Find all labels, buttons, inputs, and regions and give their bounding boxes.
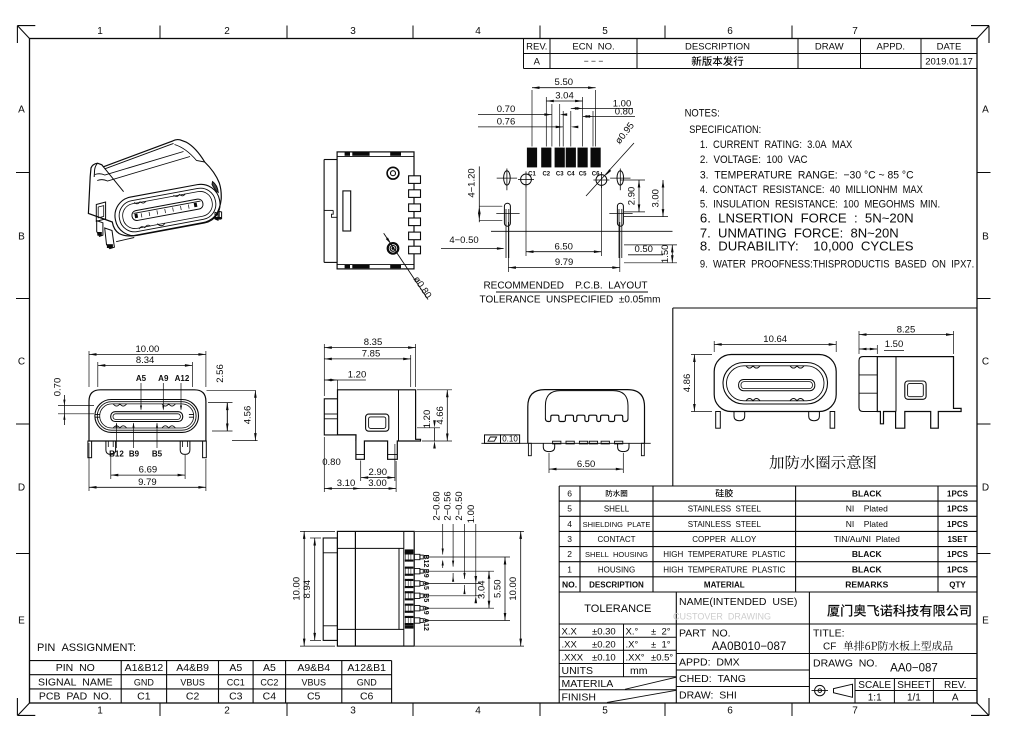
svg-text:±0.30: ±0.30 [592, 626, 616, 637]
svg-text:2: 2 [567, 549, 572, 559]
svg-text:2.90: 2.90 [369, 467, 388, 478]
svg-text:C4: C4 [263, 691, 277, 703]
svg-text:RECOMMENDED P.C.B. LAYOUT: RECOMMENDED P.C.B. LAYOUT [483, 281, 647, 292]
svg-text:1.50: 1.50 [660, 245, 671, 264]
svg-text:6.50: 6.50 [577, 459, 596, 470]
svg-text:STAINLESS STEEL: STAINLESS STEEL [688, 505, 762, 514]
svg-text:BLACK: BLACK [852, 549, 883, 559]
svg-text:MATERILA: MATERILA [562, 678, 614, 690]
svg-text:1/1: 1/1 [907, 692, 921, 703]
svg-text:±0.5°: ±0.5° [651, 653, 673, 664]
svg-text:6.50: 6.50 [554, 241, 573, 252]
svg-text:7.85: 7.85 [362, 349, 381, 360]
svg-text:CUSTOVER DRAWING: CUSTOVER DRAWING [673, 612, 771, 622]
svg-text:.XXX: .XXX [562, 653, 584, 664]
svg-text:HIGH TEMPERATURE PLASTIC: HIGH TEMPERATURE PLASTIC [663, 550, 785, 559]
svg-text:7. UNMATING FORCE: 8N~20N: 7. UNMATING FORCE: 8N~20N [700, 227, 899, 241]
svg-text:10.00: 10.00 [136, 344, 160, 355]
svg-text:DRAW: SHI: DRAW: SHI [679, 689, 737, 701]
svg-text:E: E [982, 616, 989, 627]
svg-text:NAME(INTENDED USE): NAME(INTENDED USE) [679, 596, 797, 608]
svg-text:A12: A12 [175, 374, 190, 383]
svg-text:PIN NO: PIN NO [56, 662, 95, 674]
svg-text:6: 6 [727, 706, 733, 717]
svg-text:C6: C6 [592, 172, 600, 178]
svg-text:UNITS: UNITS [562, 665, 594, 677]
svg-text:0.80: 0.80 [322, 457, 341, 468]
svg-text:.XX: .XX [562, 640, 578, 651]
svg-text:A5: A5 [229, 662, 242, 674]
svg-text:9. WATER PROOFNESS:THISPRODU: 9. WATER PROOFNESS:THISPRODUCTIS BASED O… [700, 258, 974, 270]
svg-text:CHED: TANG: CHED: TANG [679, 673, 746, 685]
svg-text:A5: A5 [263, 662, 276, 674]
svg-text:1: 1 [97, 706, 103, 717]
svg-text:5.50: 5.50 [555, 77, 574, 88]
svg-text:5: 5 [567, 504, 572, 514]
svg-text:2−0.60: 2−0.60 [432, 491, 443, 520]
svg-text:1:1: 1:1 [868, 692, 882, 703]
svg-text:DESCRIPTION: DESCRIPTION [685, 42, 750, 53]
svg-text:MATERIAL: MATERIAL [704, 580, 745, 589]
svg-text:10.00: 10.00 [508, 577, 519, 601]
svg-text:GND: GND [357, 677, 378, 687]
svg-text:B5: B5 [422, 593, 429, 602]
svg-text:A12&B1: A12&B1 [347, 662, 386, 674]
svg-text:0.70: 0.70 [497, 104, 516, 115]
svg-text:C: C [18, 357, 25, 368]
svg-text:SIGNAL NAME: SIGNAL NAME [38, 676, 113, 688]
svg-text:8.94: 8.94 [302, 580, 313, 599]
svg-text:2−0.50: 2−0.50 [454, 491, 465, 520]
svg-text:1.20: 1.20 [422, 410, 433, 429]
svg-text:B: B [982, 232, 989, 243]
svg-text:D: D [18, 483, 25, 494]
svg-text:1PCS: 1PCS [947, 490, 969, 499]
svg-text:8. DURABILITY: 10,000 CYC: 8. DURABILITY: 10,000 CYCLES [700, 240, 914, 254]
svg-text:A5: A5 [422, 581, 429, 590]
svg-text:QTY: QTY [949, 580, 966, 589]
svg-text:SPECIFICATION:: SPECIFICATION: [689, 124, 761, 136]
svg-text:SHEET: SHEET [897, 680, 930, 691]
svg-text:APPD.: APPD. [877, 42, 906, 53]
svg-text:A9&B4: A9&B4 [297, 662, 330, 674]
svg-text:BLACK: BLACK [852, 489, 883, 499]
svg-text:± 1°: ± 1° [651, 640, 671, 651]
svg-text:3: 3 [350, 706, 356, 717]
svg-text:1: 1 [97, 26, 103, 37]
svg-text:NI Plated: NI Plated [846, 504, 888, 514]
svg-text:3: 3 [350, 26, 356, 37]
svg-text:AA0B010−087: AA0B010−087 [712, 641, 787, 653]
svg-text:CC2: CC2 [260, 677, 278, 687]
svg-text:4: 4 [475, 26, 481, 37]
svg-text:±0.20: ±0.20 [592, 640, 616, 651]
svg-text:A: A [18, 105, 25, 116]
svg-text:DATE: DATE [937, 42, 962, 53]
svg-text:ECN NO.: ECN NO. [572, 42, 614, 53]
svg-text:±0.10: ±0.10 [592, 653, 616, 664]
svg-text:B: B [18, 232, 25, 243]
svg-text:TOLERANCE: TOLERANCE [584, 603, 651, 615]
svg-text:0.10: 0.10 [502, 435, 518, 444]
svg-text:C3: C3 [556, 172, 564, 178]
svg-text:4.86: 4.86 [682, 374, 693, 393]
svg-text:1.50: 1.50 [885, 339, 904, 350]
svg-text:DRAW: DRAW [815, 42, 844, 53]
svg-text:COPPER ALLOY: COPPER ALLOY [692, 535, 757, 544]
svg-text:± 2°: ± 2° [651, 626, 671, 637]
svg-text:C2: C2 [542, 172, 550, 178]
svg-text:mm: mm [630, 665, 648, 677]
svg-text:8.35: 8.35 [364, 337, 383, 348]
svg-text:2.90: 2.90 [626, 187, 637, 206]
svg-text:4. CONTACT RESISTANCE: 40: 4. CONTACT RESISTANCE: 40 MILLIONHM MAX [700, 184, 924, 196]
svg-text:2: 2 [224, 706, 230, 717]
svg-text:3.10: 3.10 [337, 478, 356, 489]
svg-text:1: 1 [567, 564, 572, 574]
svg-text:VBUS: VBUS [301, 677, 326, 687]
svg-text:CC1: CC1 [227, 677, 245, 687]
svg-text:6. LNSERTION FORCE : 5N~20: 6. LNSERTION FORCE : 5N~20N [700, 212, 914, 226]
svg-text:5. INSULATION RESISTANCE: 1: 5. INSULATION RESISTANCE: 100 MEGOHMS MI… [700, 199, 940, 211]
svg-text:0.76: 0.76 [497, 117, 516, 128]
svg-text:A: A [534, 57, 541, 68]
svg-text:4: 4 [475, 706, 481, 717]
svg-text:A5: A5 [136, 374, 147, 383]
svg-text:9.79: 9.79 [138, 477, 157, 488]
svg-text:7: 7 [852, 706, 858, 717]
svg-text:A9: A9 [158, 374, 169, 383]
svg-text:1. CURRENT RATING: 3.0A MA: 1. CURRENT RATING: 3.0A MAX [700, 139, 853, 151]
svg-text:4−0.50: 4−0.50 [449, 235, 478, 246]
svg-text:D: D [982, 483, 989, 494]
svg-text:3.00: 3.00 [651, 189, 662, 208]
svg-text:0.80: 0.80 [615, 107, 634, 118]
svg-text:C5: C5 [307, 691, 321, 703]
svg-text:A: A [982, 105, 989, 116]
svg-text:C1: C1 [137, 691, 151, 703]
svg-text:REV.: REV. [526, 42, 547, 53]
svg-text:2: 2 [224, 26, 230, 37]
svg-text:7: 7 [852, 26, 858, 37]
svg-text:SCALE: SCALE [858, 680, 891, 691]
svg-text:.XX°: .XX° [626, 653, 645, 664]
svg-text:TOLERANCE UNSPECIFIED ±0.05m: TOLERANCE UNSPECIFIED ±0.05mm [480, 295, 661, 306]
svg-text:DRAWG NO.: DRAWG NO. [813, 658, 877, 670]
svg-text:REMARKS: REMARKS [845, 579, 888, 589]
svg-text:A4&B9: A4&B9 [176, 662, 209, 674]
svg-text:SHIELDING PLATE: SHIELDING PLATE [583, 520, 651, 529]
svg-text:2−0.56: 2−0.56 [443, 491, 454, 520]
svg-text:8.34: 8.34 [136, 355, 155, 366]
svg-text:1.00: 1.00 [466, 505, 477, 524]
svg-text:C5: C5 [579, 172, 587, 178]
svg-text:0.70: 0.70 [53, 378, 64, 397]
svg-text:DESCRIPTION: DESCRIPTION [589, 580, 644, 589]
svg-text:3.04: 3.04 [477, 580, 488, 599]
svg-text:5.50: 5.50 [493, 580, 504, 599]
svg-text:TIN/Au/NI Plated: TIN/Au/NI Plated [834, 534, 900, 544]
svg-text:3: 3 [567, 534, 572, 544]
svg-text:A12: A12 [422, 618, 429, 631]
svg-text:4.66: 4.66 [435, 406, 446, 425]
svg-text:E: E [18, 616, 25, 627]
svg-text:REV.: REV. [944, 680, 966, 691]
svg-text:.X°: .X° [626, 640, 639, 651]
svg-text:A1&B12: A1&B12 [125, 662, 164, 674]
svg-text:X.X: X.X [562, 626, 578, 637]
svg-text:SHELL: SHELL [604, 505, 630, 514]
svg-text:FINISH: FINISH [562, 691, 596, 703]
svg-text:0.50: 0.50 [634, 244, 653, 255]
svg-text:APPD: DMX: APPD: DMX [679, 657, 740, 669]
svg-text:PIN ASSIGNMENT:: PIN ASSIGNMENT: [37, 642, 136, 654]
svg-text:C: C [982, 357, 989, 368]
svg-text:C6: C6 [360, 691, 374, 703]
svg-text:B9: B9 [422, 569, 429, 578]
svg-text:A: A [952, 692, 959, 703]
svg-text:CONTACT: CONTACT [597, 535, 635, 544]
svg-text:AA0−087: AA0−087 [890, 663, 938, 675]
svg-text:4.56: 4.56 [242, 406, 253, 425]
svg-text:6.69: 6.69 [139, 465, 158, 476]
svg-text:BLACK: BLACK [852, 564, 883, 574]
svg-text:3.04: 3.04 [555, 91, 574, 102]
svg-text:8.25: 8.25 [897, 324, 916, 335]
svg-text:CF: CF [823, 642, 836, 653]
svg-text:PART NO.: PART NO. [679, 628, 731, 640]
svg-text:B9: B9 [129, 450, 140, 459]
svg-text:1PCS: 1PCS [947, 565, 969, 574]
svg-text:2.56: 2.56 [215, 364, 226, 383]
svg-text:10.00: 10.00 [292, 577, 303, 601]
svg-text:C4: C4 [567, 172, 575, 178]
svg-text:X.°: X.° [626, 626, 639, 637]
svg-text:6: 6 [727, 26, 733, 37]
svg-text:2019.01.17: 2019.01.17 [925, 57, 973, 68]
svg-text:PCB PAD NO.: PCB PAD NO. [39, 691, 112, 703]
svg-text:2. VOLTAGE: 100 VAC: 2. VOLTAGE: 100 VAC [700, 154, 808, 166]
svg-text:TITLE:: TITLE: [813, 628, 845, 640]
svg-text:NI Plated: NI Plated [846, 519, 888, 529]
svg-text:9.79: 9.79 [555, 257, 574, 268]
svg-text:− − −: − − − [584, 56, 604, 66]
svg-text:1SET: 1SET [947, 535, 967, 544]
svg-text:NOTES:: NOTES: [685, 108, 720, 120]
svg-text:4: 4 [567, 519, 572, 529]
svg-text:10.64: 10.64 [763, 334, 787, 345]
svg-text:3. TEMPERATURE RANGE: −30 °: 3. TEMPERATURE RANGE: −30 °C ~ 85 °C [700, 170, 914, 182]
svg-text:1PCS: 1PCS [947, 505, 969, 514]
svg-text:C2: C2 [186, 691, 200, 703]
svg-text:HOUSING: HOUSING [598, 565, 635, 574]
svg-text:1PCS: 1PCS [947, 550, 969, 559]
svg-text:STAINLESS STEEL: STAINLESS STEEL [688, 520, 762, 529]
svg-text:A9: A9 [422, 606, 429, 615]
svg-text:6: 6 [567, 489, 572, 499]
svg-text:B5: B5 [152, 450, 163, 459]
svg-text:C1: C1 [528, 172, 536, 178]
svg-text:1PCS: 1PCS [947, 520, 969, 529]
svg-text:3.00: 3.00 [368, 478, 387, 489]
svg-text:HIGH TEMPERATURE PLASTIC: HIGH TEMPERATURE PLASTIC [663, 565, 785, 574]
svg-text:GND: GND [134, 677, 155, 687]
svg-text:1.20: 1.20 [348, 369, 367, 380]
svg-text:5: 5 [602, 706, 608, 717]
svg-text:B12: B12 [109, 450, 124, 459]
svg-text:B12: B12 [422, 555, 429, 568]
svg-text:VBUS: VBUS [180, 677, 205, 687]
svg-text:C3: C3 [229, 691, 243, 703]
svg-text:4−1.20: 4−1.20 [467, 168, 478, 197]
svg-text:SHELL HOUSING: SHELL HOUSING [585, 550, 648, 559]
svg-text:NO.: NO. [562, 579, 577, 589]
svg-text:5: 5 [602, 26, 608, 37]
